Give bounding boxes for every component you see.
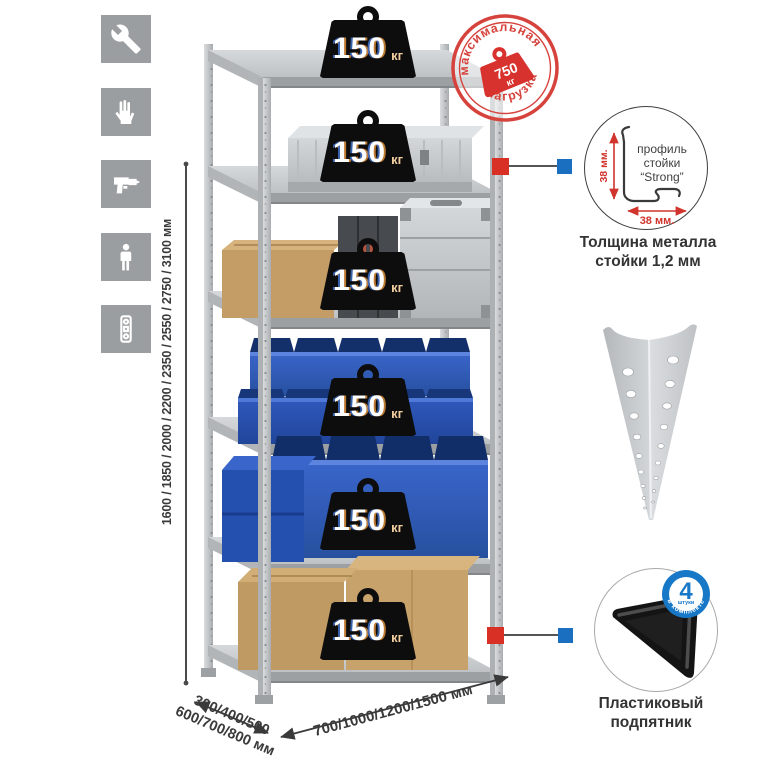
shelf-load-badge-4: 150кг	[320, 364, 416, 436]
svg-text:в комплекте: в комплекте	[666, 598, 707, 615]
foot-callout-connector	[487, 627, 573, 644]
height-dimension-line	[184, 162, 189, 686]
included-count-badge: 4 штуки в комплекте	[662, 570, 710, 618]
shelf-load-badge-2: 150кг	[320, 110, 416, 182]
shelf-load-badge-3: 150кг	[320, 238, 416, 310]
depth-dimension-arrow	[196, 702, 268, 733]
shelf-load-badge-5: 150кг	[320, 478, 416, 550]
count-ring-text: в комплекте	[666, 598, 707, 615]
shelf-load-badge-1: 150кг	[320, 6, 416, 78]
shelf-load-badge-6: 150кг	[320, 588, 416, 660]
width-dimension-arrow	[281, 677, 508, 737]
infographic-canvas: 1600 / 1850 / 2000 / 2200 / 2350 / 2550 …	[0, 0, 765, 765]
profile-callout-connector	[492, 158, 572, 175]
